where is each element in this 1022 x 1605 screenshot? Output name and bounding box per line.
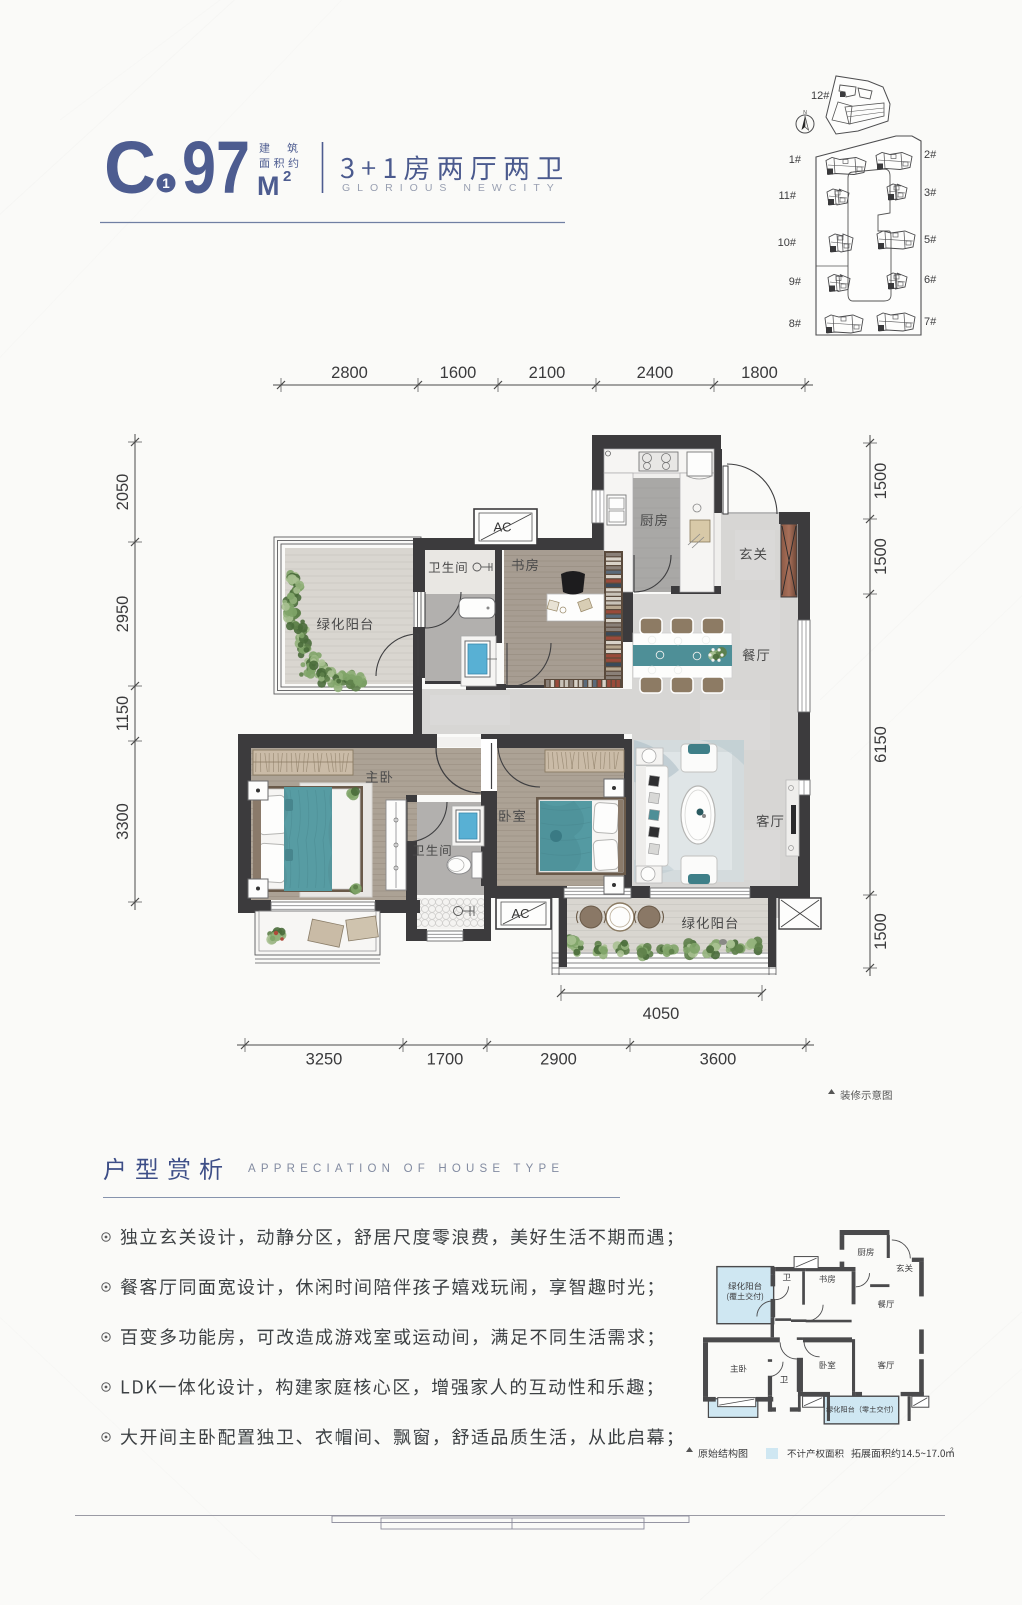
svg-text:2#: 2# [924, 149, 937, 161]
svg-text:12#: 12# [811, 90, 830, 102]
svg-text:2800: 2800 [331, 364, 368, 382]
svg-text:9#: 9# [789, 276, 802, 288]
svg-text:3300: 3300 [114, 803, 132, 840]
svg-text:6#: 6# [924, 274, 937, 286]
svg-text:7#: 7# [924, 316, 937, 328]
svg-text:1700: 1700 [427, 1051, 464, 1069]
svg-text:6150: 6150 [872, 726, 890, 763]
svg-text:11#: 11# [778, 190, 796, 202]
svg-text:1: 1 [162, 176, 170, 191]
svg-text:M: M [257, 171, 280, 201]
svg-text:1500: 1500 [872, 538, 890, 575]
svg-text:5#: 5# [924, 234, 937, 246]
svg-text:2050: 2050 [114, 474, 132, 511]
svg-text:APPRECIATION OF HOUSE TYPE: APPRECIATION OF HOUSE TYPE [248, 1163, 564, 1175]
svg-text:2: 2 [950, 1447, 954, 1454]
svg-text:1600: 1600 [440, 364, 477, 382]
svg-text:1800: 1800 [741, 364, 778, 382]
svg-text:2400: 2400 [637, 364, 674, 382]
svg-text:1150: 1150 [114, 696, 132, 731]
svg-text:2950: 2950 [114, 596, 132, 633]
svg-text:2900: 2900 [540, 1051, 577, 1069]
svg-text:1#: 1# [789, 154, 802, 166]
svg-text:8#: 8# [789, 318, 802, 330]
svg-text:2: 2 [283, 168, 291, 185]
svg-text:3600: 3600 [700, 1051, 737, 1069]
svg-text:10#: 10# [778, 237, 797, 249]
svg-text:3#: 3# [924, 187, 937, 199]
svg-text:2100: 2100 [529, 364, 566, 382]
svg-text:1500: 1500 [872, 913, 890, 950]
svg-text:N: N [803, 110, 807, 116]
svg-text:C: C [104, 126, 156, 209]
svg-text:4050: 4050 [643, 1005, 680, 1023]
svg-text:1500: 1500 [872, 463, 890, 500]
svg-text:97: 97 [182, 126, 250, 209]
svg-text:3250: 3250 [306, 1051, 343, 1069]
svg-text:GLORIOUS NEWCITY: GLORIOUS NEWCITY [342, 182, 561, 194]
